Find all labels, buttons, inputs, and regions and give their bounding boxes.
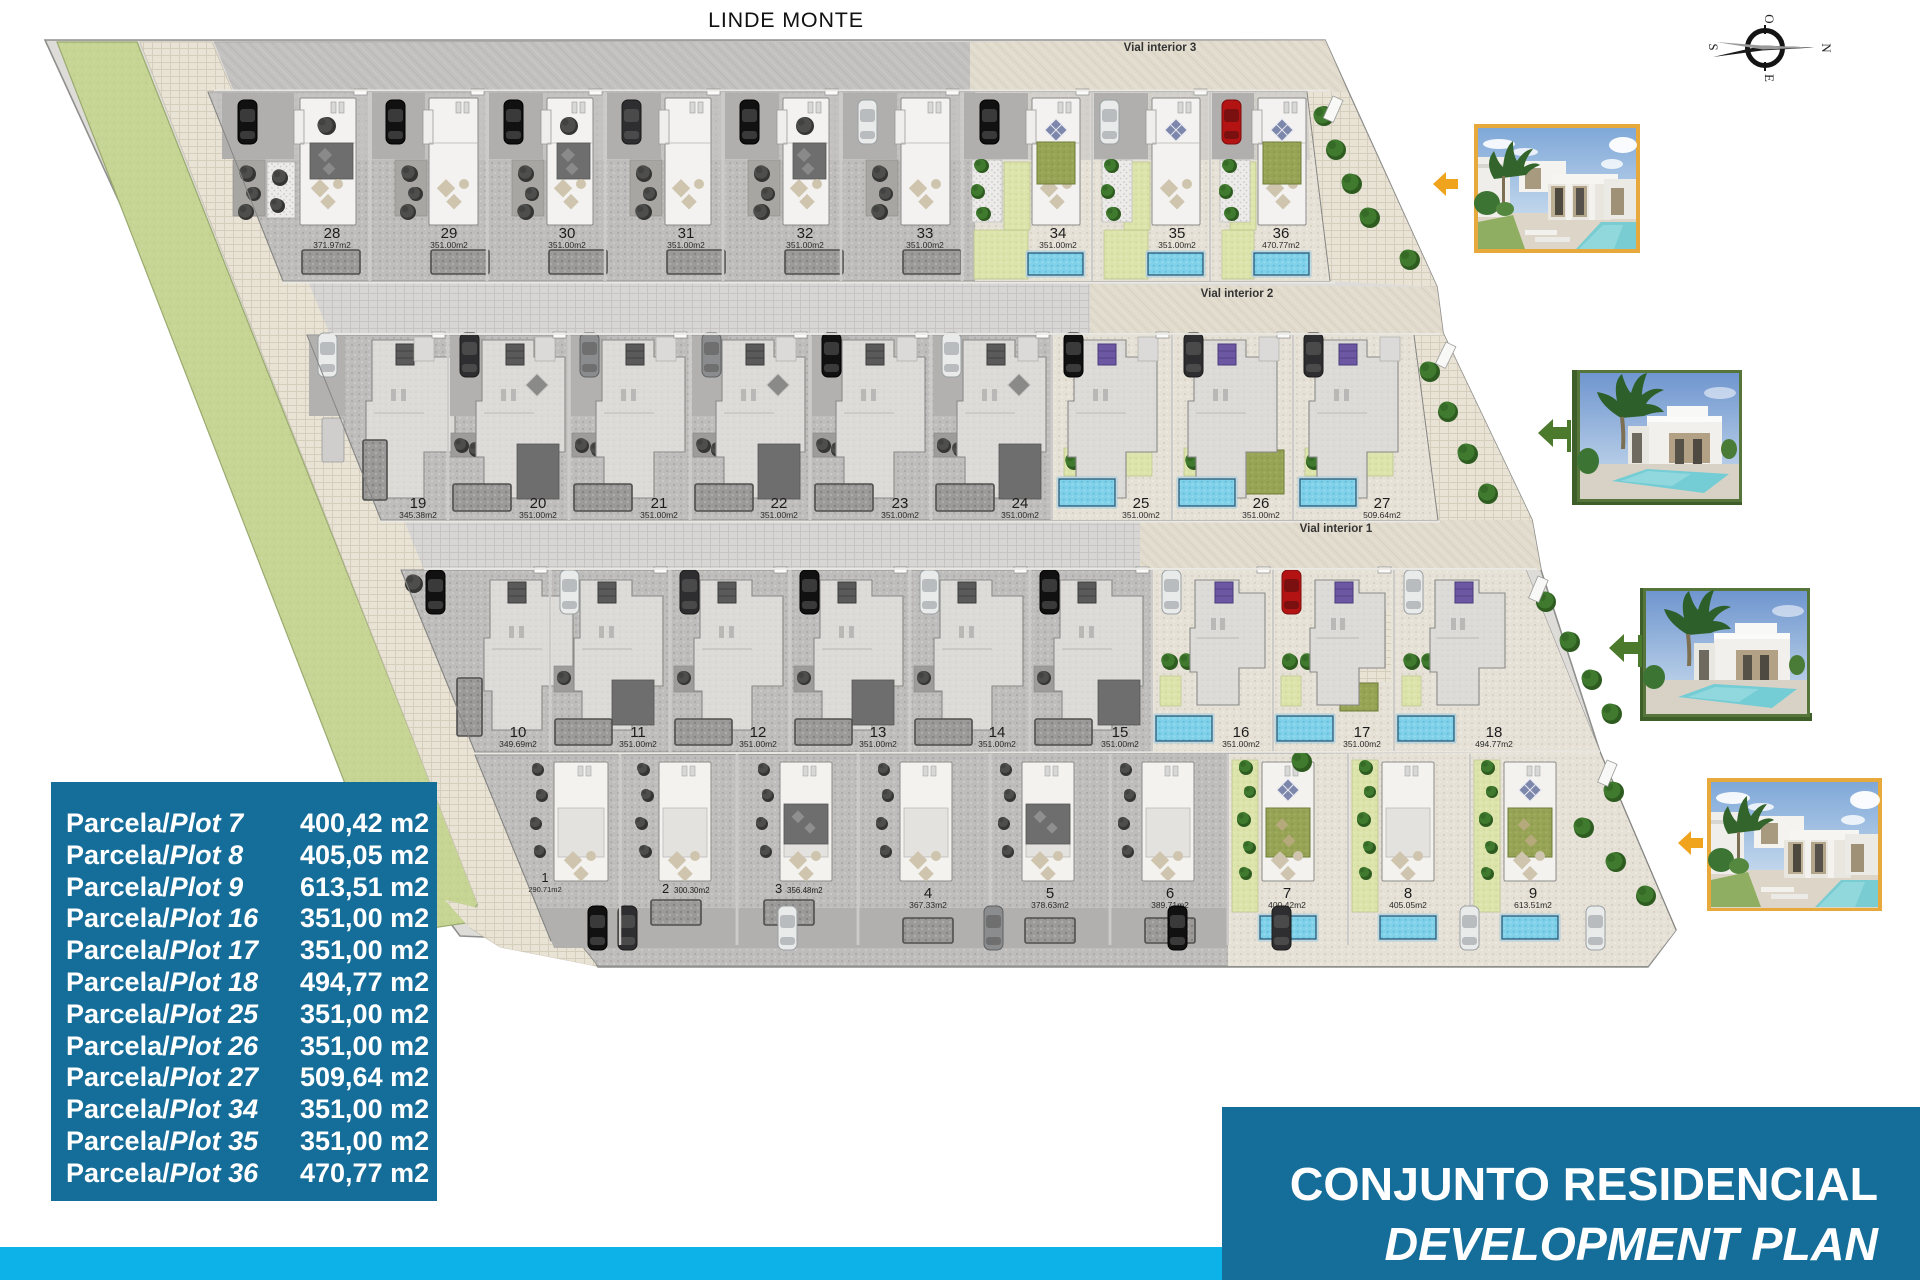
svg-text:351.00m2: 351.00m2 <box>619 739 657 749</box>
svg-text:494,77 m2: 494,77 m2 <box>300 967 429 997</box>
svg-text:Parcela/Plot 34: Parcela/Plot 34 <box>66 1094 258 1124</box>
svg-text:351.00m2: 351.00m2 <box>1222 739 1260 749</box>
svg-text:351.00m2: 351.00m2 <box>1158 240 1196 250</box>
svg-text:LINDE MONTE: LINDE MONTE <box>708 8 864 32</box>
svg-text:367.33m2: 367.33m2 <box>909 900 947 910</box>
svg-text:494.77m2: 494.77m2 <box>1475 739 1513 749</box>
svg-text:351,00 m2: 351,00 m2 <box>300 1031 429 1061</box>
svg-text:405,05 m2: 405,05 m2 <box>300 840 429 870</box>
svg-text:351,00 m2: 351,00 m2 <box>300 1094 429 1124</box>
svg-text:S: S <box>1706 43 1721 50</box>
svg-text:351.00m2: 351.00m2 <box>786 240 824 250</box>
svg-text:356.48m2: 356.48m2 <box>787 886 823 895</box>
svg-text:N: N <box>1819 43 1834 53</box>
svg-text:Parcela/Plot 27: Parcela/Plot 27 <box>66 1062 260 1092</box>
svg-text:351.00m2: 351.00m2 <box>978 739 1016 749</box>
svg-text:351.00m2: 351.00m2 <box>760 510 798 520</box>
svg-text:Parcela/Plot 25: Parcela/Plot 25 <box>66 999 259 1029</box>
svg-text:351,00 m2: 351,00 m2 <box>300 903 429 933</box>
svg-text:470.77m2: 470.77m2 <box>1262 240 1300 250</box>
svg-text:351.00m2: 351.00m2 <box>1001 510 1039 520</box>
svg-text:Vial interior 2: Vial interior 2 <box>1201 288 1274 300</box>
svg-text:345.38m2: 345.38m2 <box>399 510 437 520</box>
svg-text:DEVELOPMENT PLAN: DEVELOPMENT PLAN <box>1385 1218 1880 1270</box>
svg-text:470,77 m2: 470,77 m2 <box>300 1158 429 1188</box>
svg-text:351.00m2: 351.00m2 <box>859 739 897 749</box>
svg-text:613.51m2: 613.51m2 <box>1514 900 1552 910</box>
svg-text:1: 1 <box>541 870 548 885</box>
svg-text:Parcela/Plot 36: Parcela/Plot 36 <box>66 1158 259 1188</box>
svg-text:509,64 m2: 509,64 m2 <box>300 1062 429 1092</box>
svg-text:Vial interior 1: Vial interior 1 <box>1300 523 1373 535</box>
svg-text:351.00m2: 351.00m2 <box>881 510 919 520</box>
svg-text:3: 3 <box>775 881 782 896</box>
svg-text:Parcela/Plot 35: Parcela/Plot 35 <box>66 1126 259 1156</box>
svg-text:2: 2 <box>662 881 669 896</box>
svg-text:Parcela/Plot 17: Parcela/Plot 17 <box>66 935 260 965</box>
svg-text:351,00 m2: 351,00 m2 <box>300 1126 429 1156</box>
svg-text:Parcela/Plot 7: Parcela/Plot 7 <box>66 808 245 838</box>
svg-text:290.71m2: 290.71m2 <box>528 885 561 894</box>
svg-text:351,00 m2: 351,00 m2 <box>300 999 429 1029</box>
svg-text:351.00m2: 351.00m2 <box>667 240 705 250</box>
svg-text:509.64m2: 509.64m2 <box>1363 510 1401 520</box>
svg-text:378.63m2: 378.63m2 <box>1031 900 1069 910</box>
svg-text:351.00m2: 351.00m2 <box>548 240 586 250</box>
svg-text:351.00m2: 351.00m2 <box>430 240 468 250</box>
svg-text:371.97m2: 371.97m2 <box>313 240 351 250</box>
svg-text:Vial interior 3: Vial interior 3 <box>1124 42 1197 54</box>
svg-text:613,51 m2: 613,51 m2 <box>300 872 429 902</box>
svg-text:Parcela/Plot 26: Parcela/Plot 26 <box>66 1031 259 1061</box>
svg-text:351.00m2: 351.00m2 <box>1242 510 1280 520</box>
svg-text:Parcela/Plot 16: Parcela/Plot 16 <box>66 903 259 933</box>
svg-text:351.00m2: 351.00m2 <box>906 240 944 250</box>
svg-text:351.00m2: 351.00m2 <box>1039 240 1077 250</box>
svg-text:351.00m2: 351.00m2 <box>1122 510 1160 520</box>
svg-text:351.00m2: 351.00m2 <box>1343 739 1381 749</box>
svg-text:400,42 m2: 400,42 m2 <box>300 808 429 838</box>
svg-text:Parcela/Plot 8: Parcela/Plot 8 <box>66 840 243 870</box>
svg-text:351.00m2: 351.00m2 <box>739 739 777 749</box>
svg-text:O: O <box>1762 14 1777 23</box>
svg-text:Parcela/Plot 18: Parcela/Plot 18 <box>66 967 258 997</box>
svg-text:349.69m2: 349.69m2 <box>499 739 537 749</box>
svg-text:405.05m2: 405.05m2 <box>1389 900 1427 910</box>
svg-text:Parcela/Plot 9: Parcela/Plot 9 <box>66 872 243 902</box>
svg-text:351.00m2: 351.00m2 <box>1101 739 1139 749</box>
svg-text:CONJUNTO RESIDENCIAL: CONJUNTO RESIDENCIAL <box>1290 1158 1878 1210</box>
svg-text:300.30m2: 300.30m2 <box>674 886 710 895</box>
svg-text:351.00m2: 351.00m2 <box>519 510 557 520</box>
svg-text:351.00m2: 351.00m2 <box>640 510 678 520</box>
svg-text:E: E <box>1762 74 1777 82</box>
svg-text:351,00 m2: 351,00 m2 <box>300 935 429 965</box>
